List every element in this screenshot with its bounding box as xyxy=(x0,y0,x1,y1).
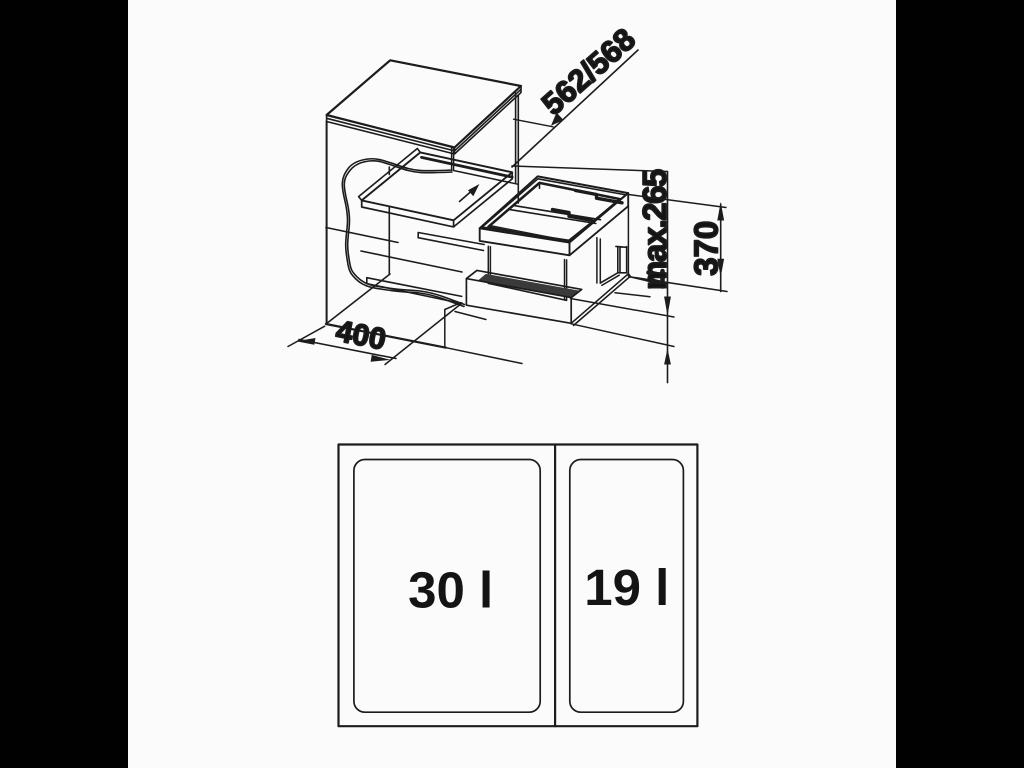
svg-text:400: 400 xyxy=(333,315,388,357)
svg-text:562/568: 562/568 xyxy=(535,21,642,121)
svg-text:30 l: 30 l xyxy=(408,562,493,619)
svg-text:370: 370 xyxy=(688,221,725,276)
svg-text:19 l: 19 l xyxy=(584,559,669,616)
svg-text:max.265: max.265 xyxy=(636,169,673,290)
